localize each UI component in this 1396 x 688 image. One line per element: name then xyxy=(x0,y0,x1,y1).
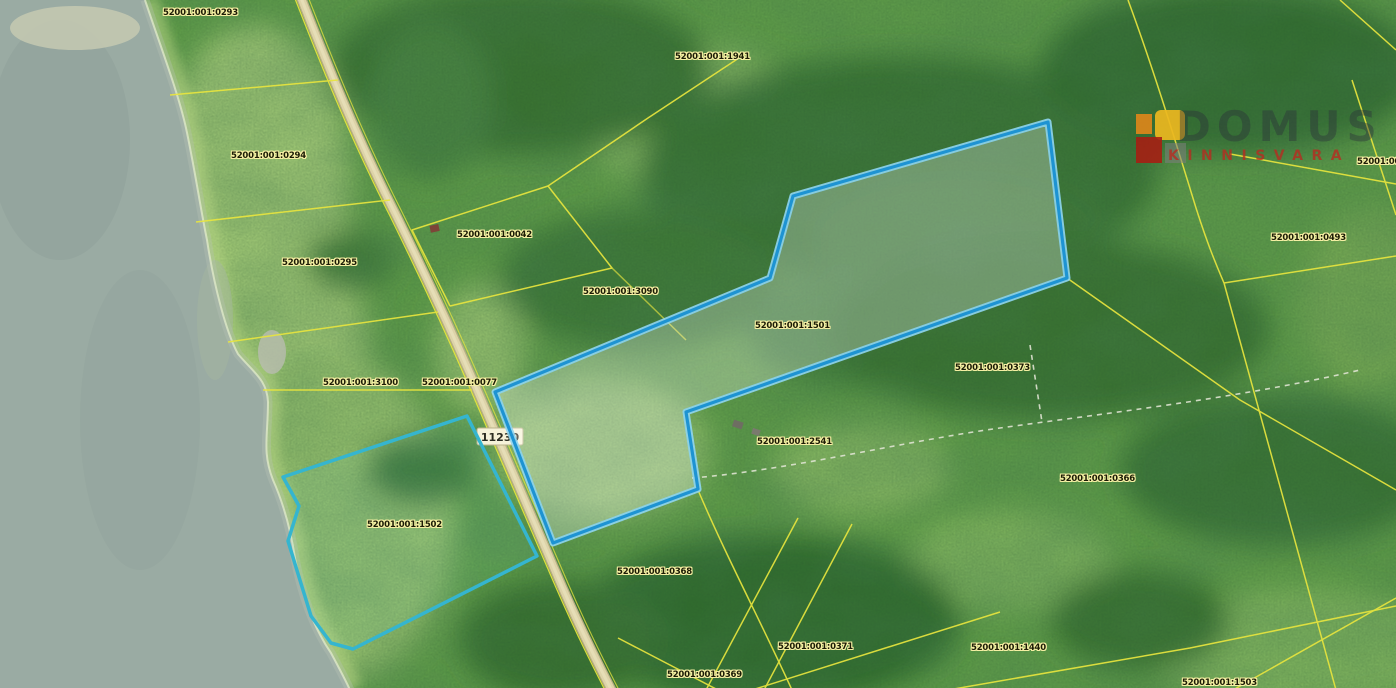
shallow-sand-patch xyxy=(10,6,140,50)
map-canvas[interactable]: 11230 52001:001:029352001:001:194152001:… xyxy=(0,0,1396,688)
aerial-map-graphics: 11230 xyxy=(0,0,1396,688)
